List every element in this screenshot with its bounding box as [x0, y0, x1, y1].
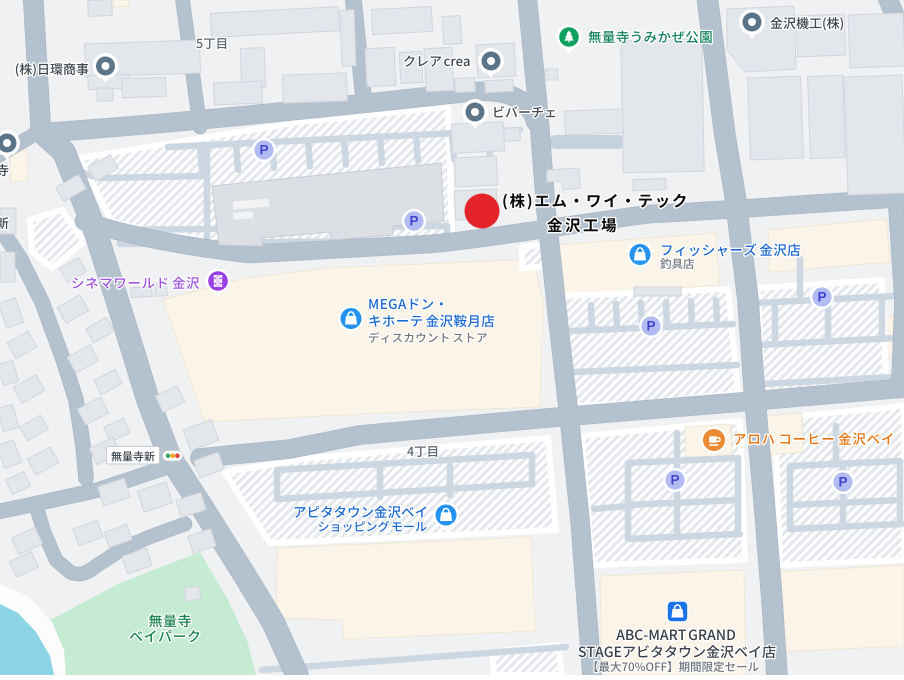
svg-text:P: P: [670, 473, 679, 488]
svg-text:P: P: [817, 290, 826, 305]
svg-text:P: P: [259, 143, 268, 158]
svg-text:P: P: [409, 214, 418, 229]
svg-text:P: P: [646, 319, 655, 334]
svg-text:P: P: [838, 475, 847, 490]
